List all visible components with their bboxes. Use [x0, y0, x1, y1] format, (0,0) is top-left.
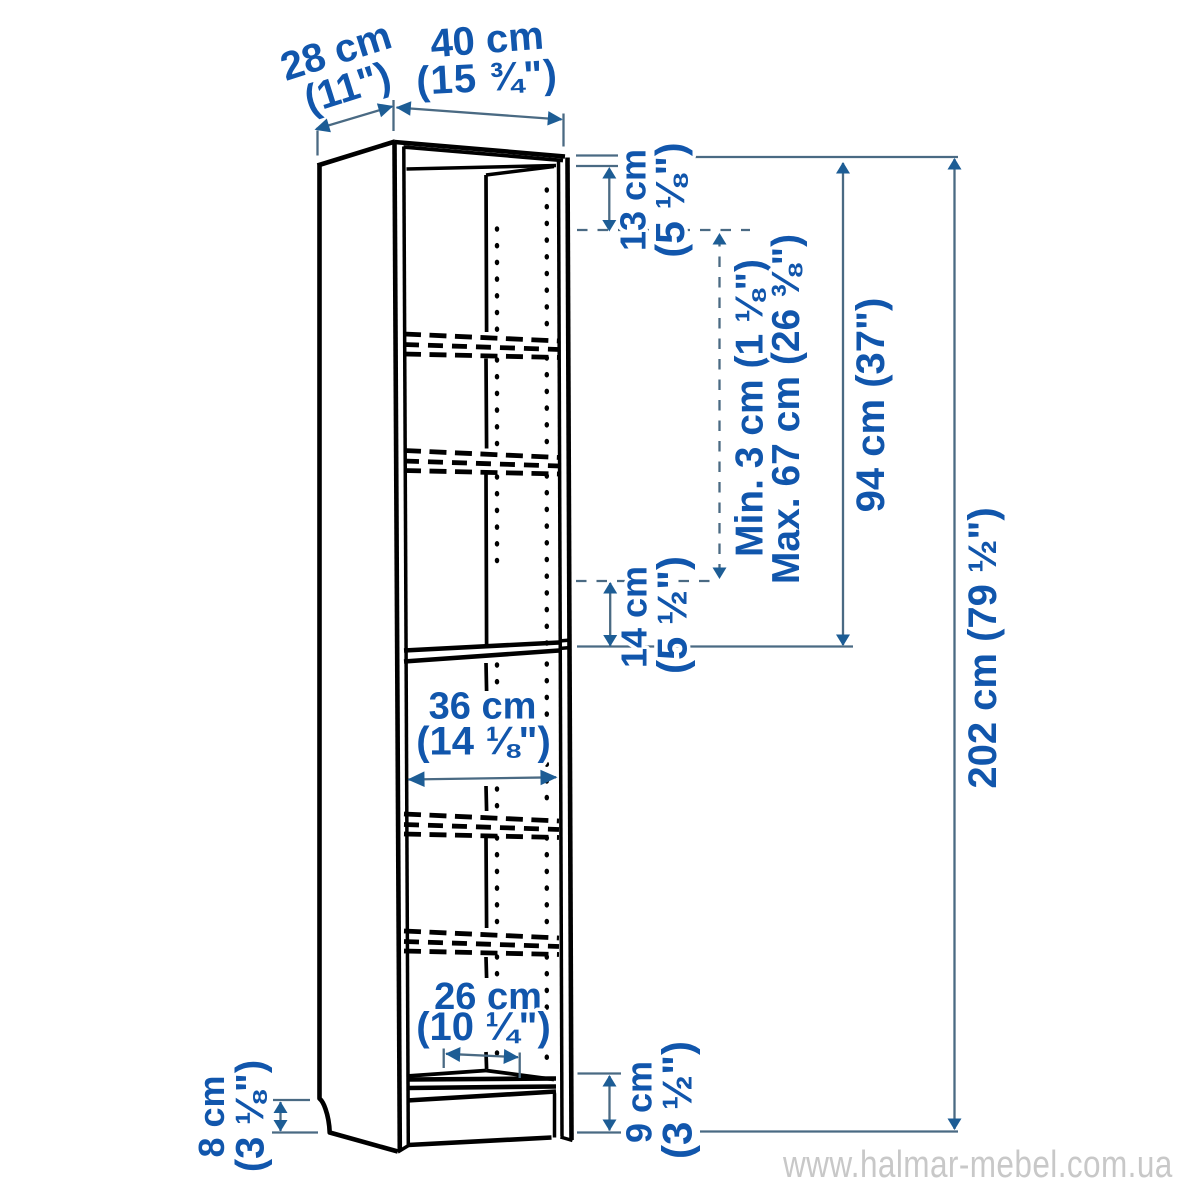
svg-text:8 cm: 8 cm [191, 1075, 232, 1157]
svg-text:(5 ½"): (5 ½") [649, 556, 696, 674]
svg-text:(14 ⅛"): (14 ⅛") [416, 720, 551, 764]
svg-text:(3 ⅛"): (3 ⅛") [229, 1060, 273, 1172]
svg-text:202 cm (79 ½"): 202 cm (79 ½") [961, 507, 1005, 788]
svg-text:94 cm (37"): 94 cm (37") [849, 298, 893, 513]
svg-text:(15 ¾"): (15 ¾") [415, 52, 559, 103]
svg-text:(3 ½"): (3 ½") [654, 1041, 701, 1159]
svg-text:www.halmar-mebel.com.ua: www.halmar-mebel.com.ua [782, 1143, 1173, 1185]
svg-text:(10 ¼"): (10 ¼") [416, 1005, 551, 1049]
svg-text:(5 ⅛"): (5 ⅛") [647, 142, 693, 257]
svg-text:Max. 67 cm (26 ⅜"): Max. 67 cm (26 ⅜") [765, 234, 808, 584]
